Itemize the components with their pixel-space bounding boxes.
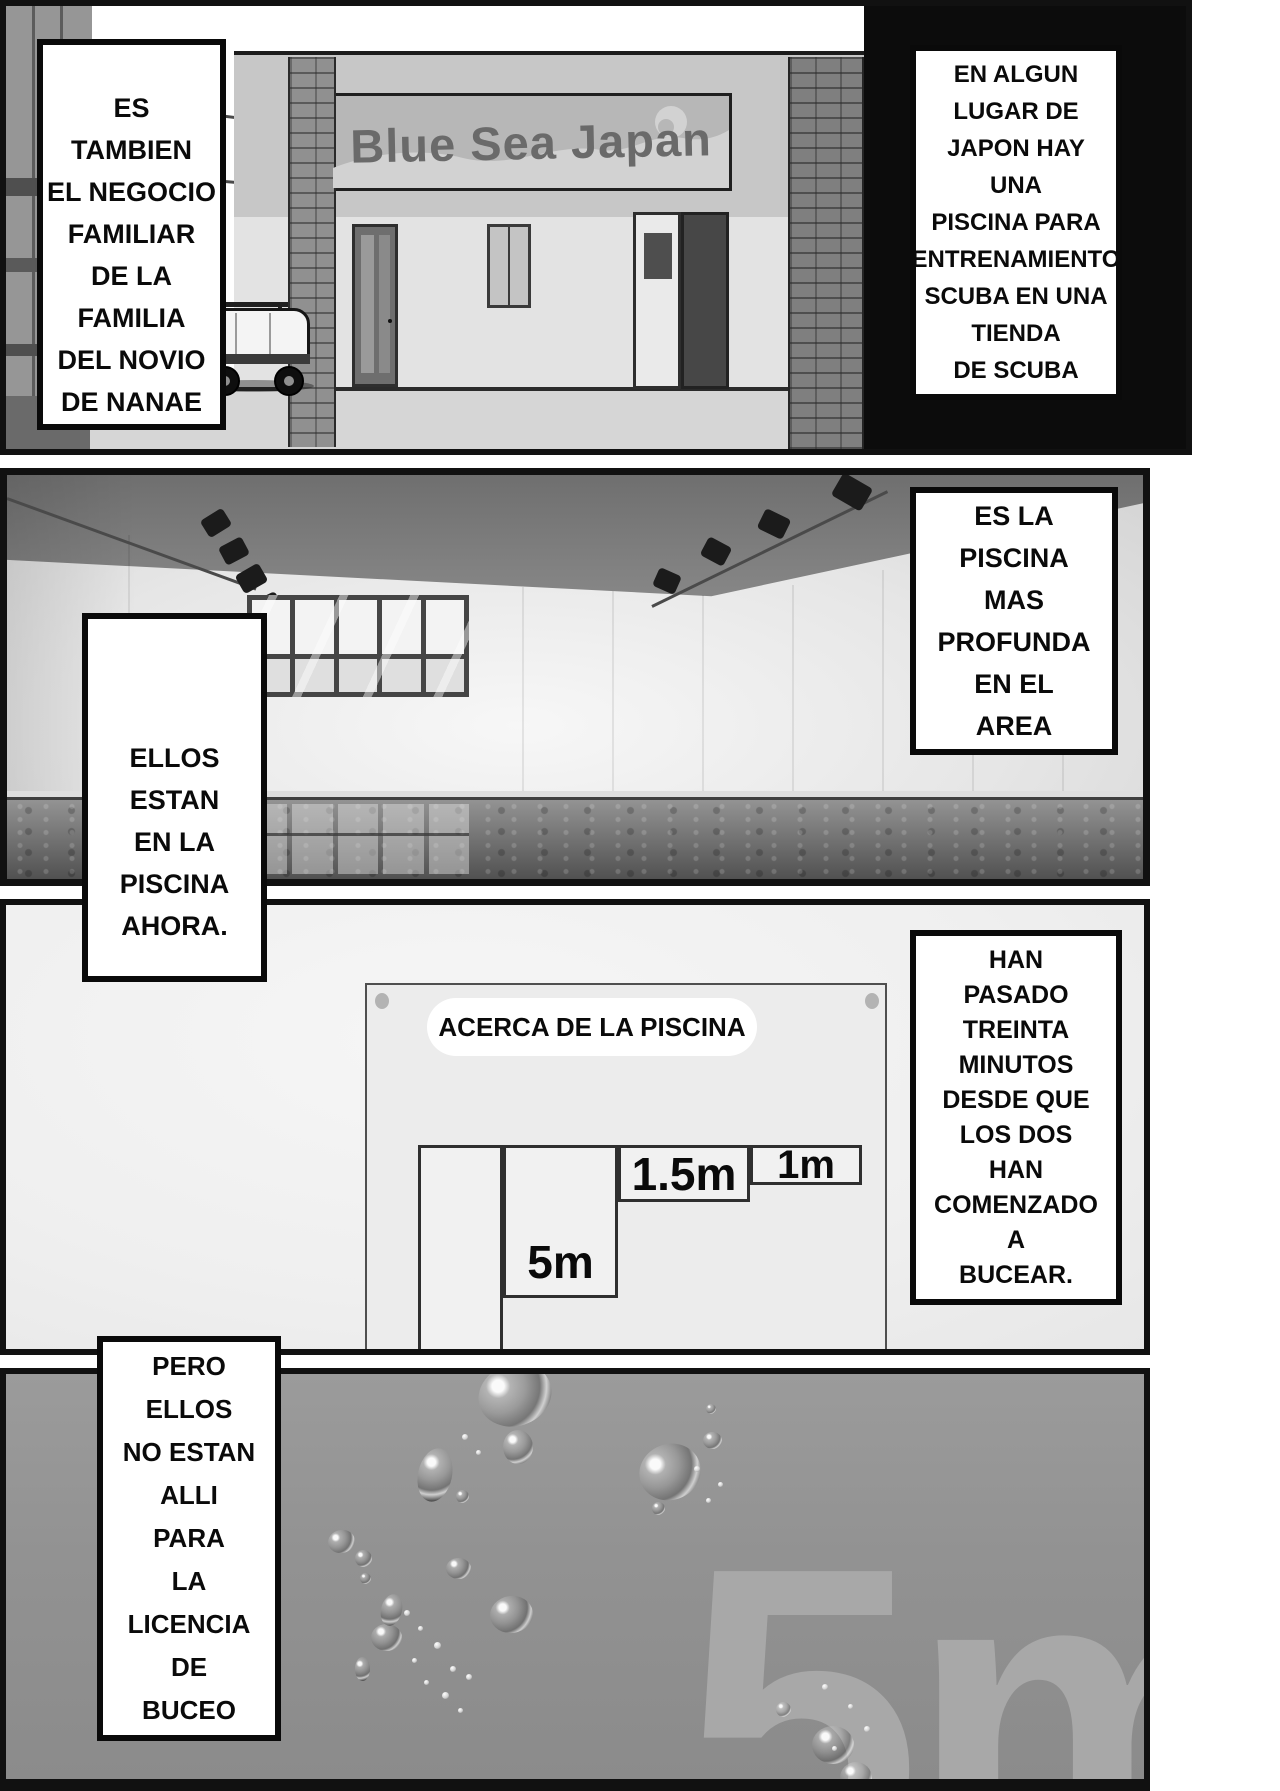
bubble [470,1374,560,1436]
diagram-depth-5m: 5m [503,1145,618,1298]
caption-line: EN LA [134,821,215,863]
storefront-sign: Blue Sea Japan [330,93,732,191]
bubble [503,1430,533,1464]
caption-line: A [1007,1223,1025,1258]
window-glare [247,595,469,697]
depth-label-5m: 5m [527,1235,593,1295]
caption-line: PISCINA PARA [931,204,1100,241]
caption-line: TAMBIEN [71,129,192,171]
caption-line: TIENDA [971,315,1060,352]
caption-line: ESTAN [130,779,220,821]
bubble [812,1726,854,1764]
diagram-depth-1-5m: 1.5m [618,1145,750,1202]
caption-line: ALLI [160,1474,218,1517]
caption-line: FAMILIAR [68,213,196,255]
sign-title-bubble: ACERCA DE LA PISCINA [427,998,757,1056]
window-reflection [247,804,469,874]
caption-line: PROFUNDA [938,621,1091,663]
caption-line: ENTRENAMIENTO [912,241,1121,278]
bubble [706,1404,716,1414]
caption-line: PARA [153,1517,225,1560]
caption-es-la-piscina: ES LAPISCINAMASPROFUNDAEN ELAREA [910,487,1118,755]
caption-line: PISCINA [120,863,230,905]
caption-es-tambien: ESTAMBIENEL NEGOCIOFAMILIARDE LAFAMILIAD… [37,39,226,430]
storefront-sign-text: Blue Sea Japan [332,92,730,192]
bubble [355,1657,370,1681]
caption-line: DEL NOVIO [57,339,205,381]
bubble [446,1558,471,1579]
caption-line: ES LA [974,495,1054,537]
caption-line: MINUTOS [959,1048,1074,1083]
bubble [371,1624,402,1651]
caption-line: PERO [152,1345,226,1388]
caption-en-algun: EN ALGUNLUGAR DEJAPON HAYUNAPISCINA PARA… [910,45,1122,400]
caption-line: MAS [984,579,1044,621]
caption-line: DESDE QUE [942,1083,1089,1118]
caption-line: SCUBA EN UNA [924,278,1107,315]
caption-line: ES [113,87,149,129]
caption-line: BUCEO [142,1689,236,1732]
caption-line: UNA [990,167,1042,204]
bubble [776,1702,791,1717]
caption-line: PASADO [963,978,1068,1013]
caption-line: EN ALGUN [954,56,1078,93]
brick-pillar-right [788,57,864,449]
caption-line: TREINTA [963,1013,1069,1048]
caption-line: FAMILIA [78,297,186,339]
caption-line: DE [171,1646,207,1689]
caption-line: HAN [989,943,1043,978]
caption-line: LUGAR DE [953,93,1078,130]
caption-line: COMENZADO [934,1188,1098,1223]
caption-ellos-estan: ELLOSESTANEN LAPISCINAAHORA. [82,613,267,982]
caption-line: EN EL [974,663,1054,705]
caption-line: DE SCUBA [953,352,1078,389]
diagram-wall-box [418,1145,503,1349]
screw-dot [375,993,389,1009]
store-window [487,224,531,308]
bubble [456,1490,469,1503]
bubble [413,1445,457,1505]
depth-label-1m: 1m [777,1143,835,1188]
caption-line: ELLOS [146,1388,233,1431]
store-double-door [633,212,729,389]
caption-han-pasado: HANPASADOTREINTAMINUTOSDESDE QUELOS DOSH… [910,930,1122,1305]
caption-line: JAPON HAY [947,130,1085,167]
caption-line: DE NANAE [61,381,202,423]
caption-line: LA [172,1560,207,1603]
bubble [703,1432,722,1449]
bubble [488,1593,536,1636]
caption-line: EL NEGOCIO [47,171,216,213]
caption-line: PISCINA [959,537,1069,579]
caption-line: LICENCIA [128,1603,251,1646]
caption-line: BUCEAR. [959,1258,1073,1293]
bubble [326,1527,357,1555]
caption-line: NO ESTAN [123,1431,255,1474]
caption-line: LOS DOS [960,1118,1073,1153]
bubble [377,1592,405,1628]
depth-watermark: 5m [682,1552,1144,1779]
caption-line: AREA [976,705,1053,747]
comic-page: { "panel1": { "storefront_sign": "Blue S… [0,0,1280,1791]
sign-title: ACERCA DE LA PISCINA [438,1012,745,1043]
caption-line: HAN [989,1153,1043,1188]
caption-pero-ellos: PEROELLOSNO ESTANALLIPARALALICENCIADEBUC… [97,1336,281,1741]
bubble [360,1573,371,1584]
depth-label-1-5m: 1.5m [632,1147,737,1201]
store-door [352,224,398,387]
caption-line: AHORA. [121,905,228,947]
pool-window [247,595,469,697]
bubble [652,1502,665,1515]
caption-line: ELLOS [129,737,219,779]
caption-line: DE LA [91,255,172,297]
screw-dot [865,993,879,1009]
diagram-depth-1m: 1m [750,1145,862,1185]
bubble [355,1550,372,1567]
